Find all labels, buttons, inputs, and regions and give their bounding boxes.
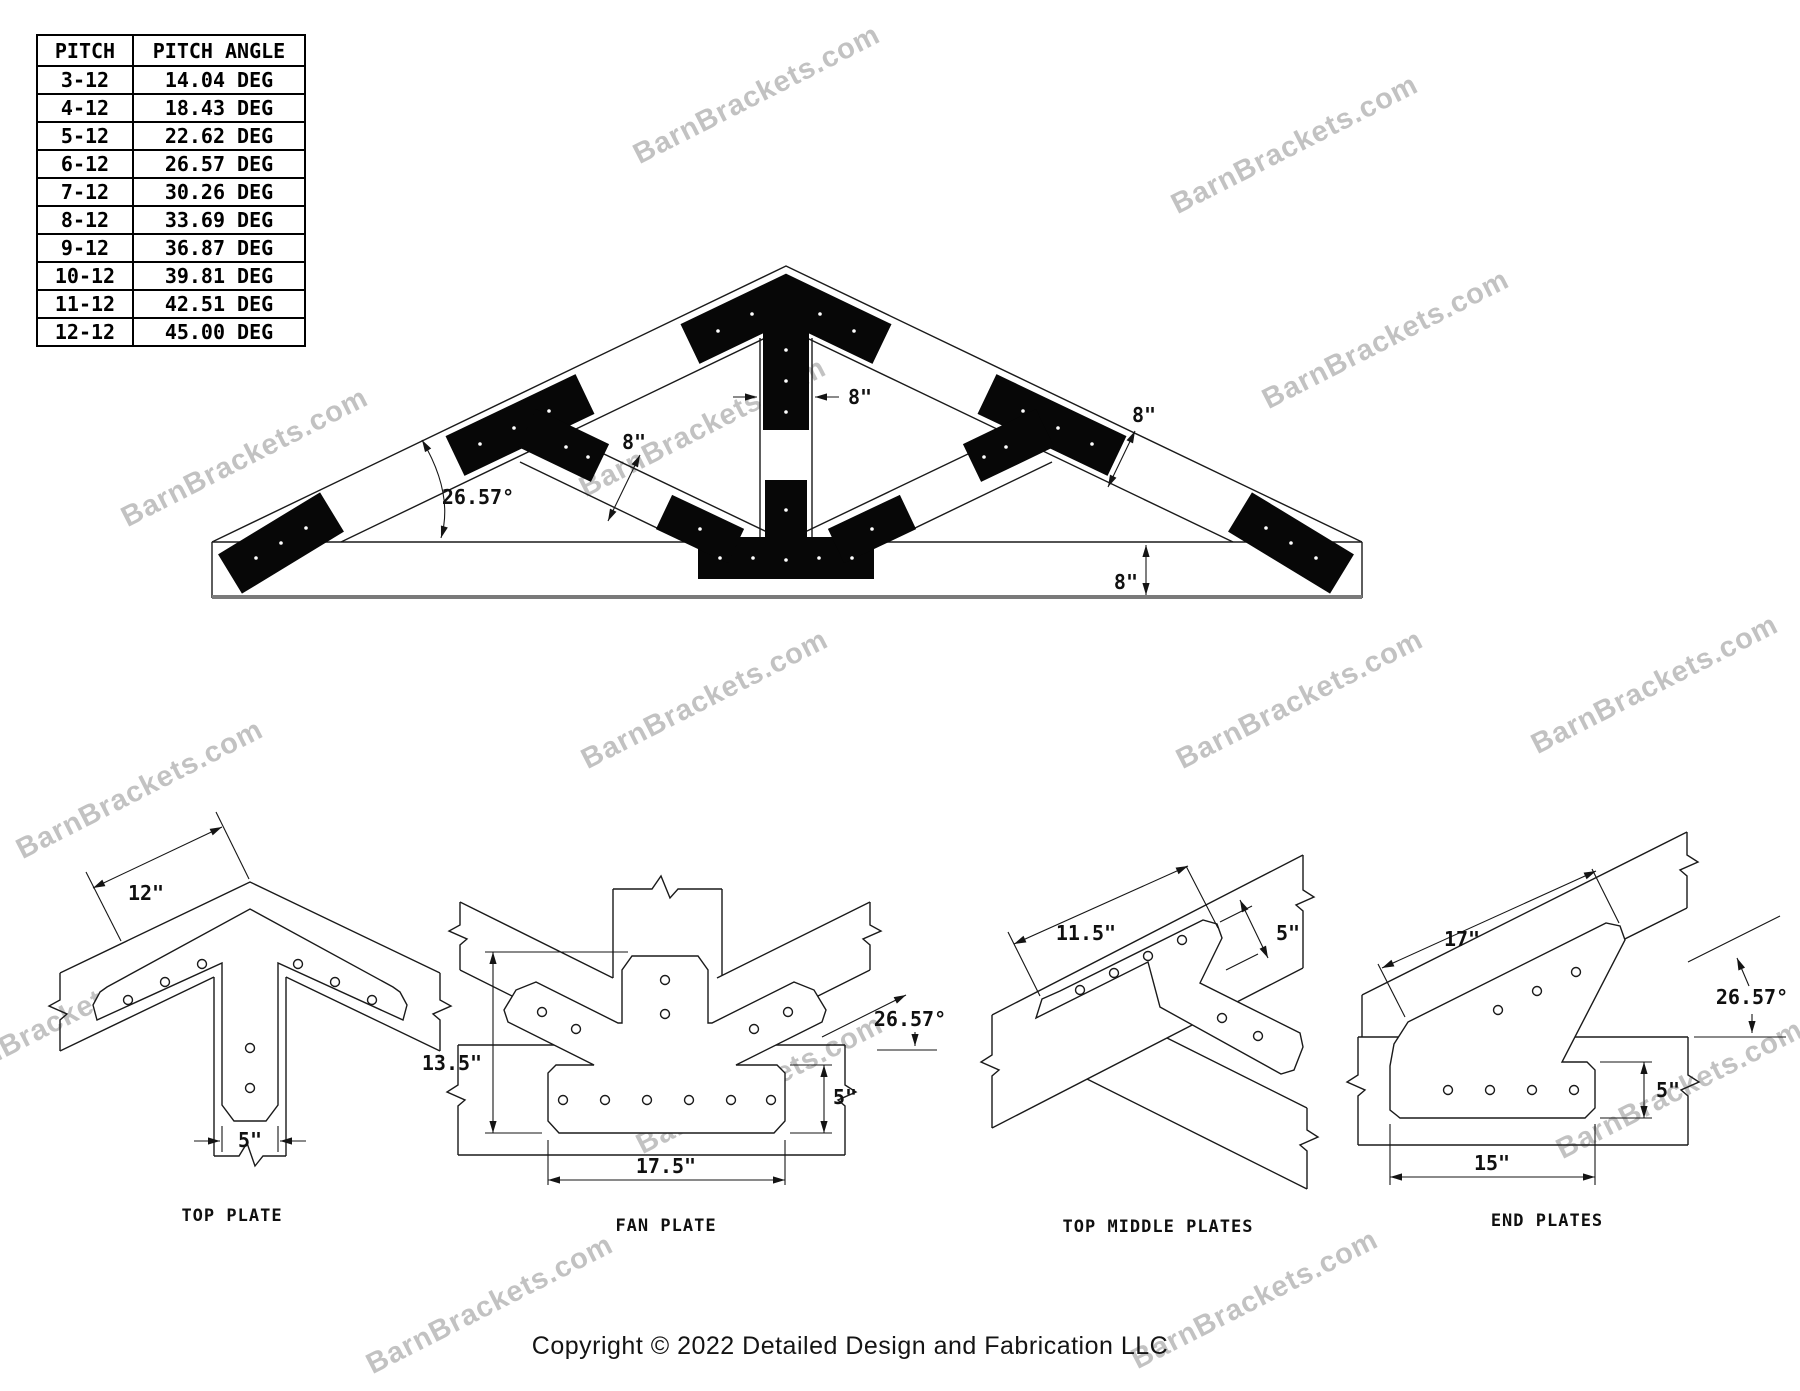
dim-chord-width: 8" — [1114, 570, 1138, 594]
end-plates-detail: 17" 26.57° 5" 15" END PLATES — [1347, 832, 1788, 1231]
dim-fan-base-length: 17.5" — [636, 1154, 696, 1178]
top-middle-plates-label: TOP MIDDLE PLATES — [1063, 1217, 1254, 1237]
top-middle-dims — [1008, 866, 1268, 996]
top-plate-label: TOP PLATE — [181, 1206, 282, 1226]
copyright-text: Copyright © 2022 Detailed Design and Fab… — [532, 1332, 1168, 1361]
dim-end-base-height: 5" — [1656, 1078, 1680, 1102]
top-plate-detail: 12" 5" TOP PLATE — [49, 812, 451, 1226]
dim-top-plate-stem: 5" — [238, 1128, 262, 1152]
dim-end-angle: 26.57° — [1716, 985, 1788, 1009]
dim-fan-height: 13.5" — [422, 1051, 482, 1075]
truss-drawing: 8" 8" 8" 8" 26.57° — [0, 0, 1800, 1391]
top-middle-plates-detail: 11.5" 5" TOP MIDDLE PLATES — [981, 855, 1318, 1237]
dim-top-plate-arm: 12" — [128, 881, 164, 905]
dim-fan-strut-angle: 26.57° — [874, 1007, 946, 1031]
dim-end-rafter-length: 17" — [1444, 927, 1480, 951]
dim-king-post-width: 8" — [848, 385, 872, 409]
dim-pitch-angle: 26.57° — [442, 485, 514, 509]
dim-end-base-length: 15" — [1474, 1151, 1510, 1175]
fan-plate-label: FAN PLATE — [615, 1216, 716, 1236]
dim-rafter-width: 8" — [1132, 403, 1156, 427]
fan-plate-detail: 13.5" 17.5" 5" 26.57° FAN PLATE — [422, 876, 946, 1236]
end-plates-label: END PLATES — [1491, 1211, 1603, 1231]
dim-top-middle-width: 5" — [1276, 921, 1300, 945]
dim-top-middle-length: 11.5" — [1056, 921, 1116, 945]
truss-diagram: 8" 8" 8" 8" 26.57° — [212, 266, 1362, 598]
drawing-canvas: BarnBrackets.com BarnBrackets.com BarnBr… — [0, 0, 1800, 1391]
dim-strut-width: 8" — [622, 430, 646, 454]
steel-brackets — [230, 298, 1342, 574]
dim-fan-base-height: 5" — [833, 1085, 857, 1109]
end-plate-bracket — [1390, 923, 1625, 1118]
